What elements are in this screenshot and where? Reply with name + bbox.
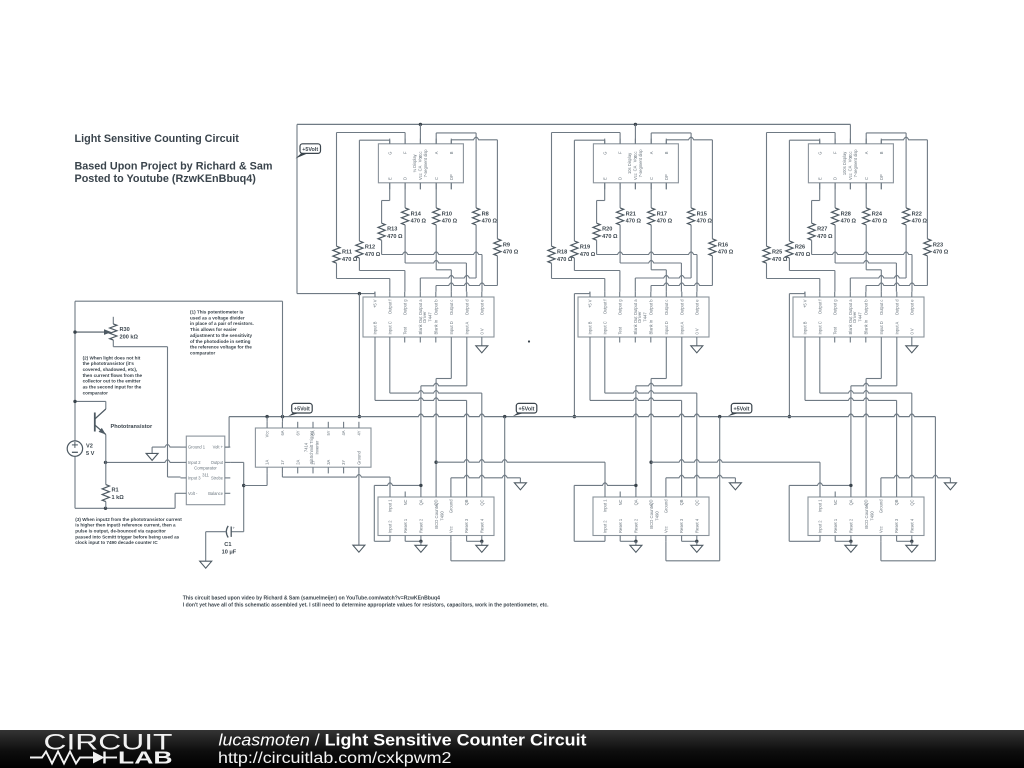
svg-text:0 V: 0 V bbox=[909, 328, 914, 334]
svg-text:470 Ω: 470 Ω bbox=[442, 219, 458, 225]
svg-text:Volt +: Volt + bbox=[213, 445, 224, 450]
svg-text:used as a voltage divider: used as a voltage divider bbox=[190, 315, 245, 320]
svg-text:311: 311 bbox=[202, 473, 209, 478]
svg-text:+: + bbox=[233, 525, 236, 530]
svg-text:CA Vcc: CA Vcc bbox=[418, 155, 423, 171]
svg-text:Blank In: Blank In bbox=[863, 319, 868, 335]
svg-text:Reset 2: Reset 2 bbox=[849, 518, 854, 533]
svg-text:R24: R24 bbox=[872, 211, 883, 217]
svg-text:Input D: Input D bbox=[449, 321, 454, 334]
svg-text:Strobe: Strobe bbox=[211, 476, 224, 481]
svg-text:+5Volt: +5Volt bbox=[519, 407, 535, 413]
svg-text:7-segment disp: 7-segment disp bbox=[423, 149, 428, 178]
svg-text:10 μF: 10 μF bbox=[222, 550, 237, 556]
svg-text:3Y: 3Y bbox=[341, 460, 346, 465]
svg-text:E: E bbox=[602, 177, 607, 180]
svg-text:Ground: Ground bbox=[879, 499, 884, 513]
svg-text:Reset 1: Reset 1 bbox=[403, 518, 408, 533]
svg-text:470 Ω: 470 Ω bbox=[912, 219, 928, 225]
svg-text:BCD Counter: BCD Counter bbox=[649, 503, 654, 529]
svg-text:Ground: Ground bbox=[449, 499, 454, 513]
svg-text:100s Display: 100s Display bbox=[842, 151, 847, 175]
svg-text:470 Ω: 470 Ω bbox=[841, 219, 857, 225]
svg-text:R16: R16 bbox=[718, 242, 728, 248]
svg-text:R23: R23 bbox=[933, 242, 943, 248]
svg-text:Reset 4: Reset 4 bbox=[909, 518, 914, 533]
svg-text:5 V: 5 V bbox=[86, 451, 95, 457]
svg-text:Input D: Input D bbox=[879, 321, 884, 334]
svg-text:Output b: Output b bbox=[863, 299, 868, 315]
svg-text:470 Ω: 470 Ω bbox=[557, 257, 573, 263]
svg-text:NC: NC bbox=[403, 499, 408, 505]
svg-text:Posted to Youtube (RzwKEnBbuq4: Posted to Youtube (RzwKEnBbuq4) bbox=[75, 173, 257, 185]
svg-text:QB: QB bbox=[464, 499, 469, 505]
svg-text:10s Display: 10s Display bbox=[627, 152, 632, 174]
svg-text:I don't yet have all of this s: I don't yet have all of this schematic a… bbox=[183, 602, 549, 608]
svg-text:470 Ω: 470 Ω bbox=[365, 252, 381, 258]
svg-text:adjustment to the sensitivity: adjustment to the sensitivity bbox=[190, 333, 252, 338]
svg-text:Output b: Output b bbox=[433, 299, 438, 315]
svg-text:Input 2: Input 2 bbox=[188, 460, 201, 465]
svg-text:Comparator: Comparator bbox=[194, 466, 217, 471]
svg-text:C: C bbox=[864, 177, 869, 180]
svg-text:Test: Test bbox=[832, 326, 837, 334]
svg-text:470 Ω: 470 Ω bbox=[933, 250, 949, 256]
svg-text:470 Ω: 470 Ω bbox=[411, 219, 427, 225]
svg-text:470 Ω: 470 Ω bbox=[626, 219, 642, 225]
svg-text:Driver: Driver bbox=[852, 311, 857, 323]
svg-text:Driver: Driver bbox=[422, 311, 427, 323]
svg-text:lucasmoten / Light Sensitive C: lucasmoten / Light Sensitive Counter Cir… bbox=[219, 732, 588, 750]
svg-text:is higher then input3 referenc: is higher then input3 reference current,… bbox=[75, 523, 176, 528]
svg-text:+5Volt: +5Volt bbox=[294, 407, 310, 413]
svg-text:Blank In: Blank In bbox=[648, 319, 653, 335]
svg-text:QC: QC bbox=[694, 499, 699, 505]
svg-text:0 V: 0 V bbox=[694, 328, 699, 334]
svg-text:C: C bbox=[434, 177, 439, 180]
svg-text:comparator: comparator bbox=[190, 350, 215, 355]
svg-text:Reset 4: Reset 4 bbox=[694, 518, 699, 533]
svg-text:Light Sensitive Counting Circu: Light Sensitive Counting Circuit bbox=[75, 133, 240, 145]
svg-text:Balance: Balance bbox=[208, 491, 224, 496]
svg-text:CA Vcc: CA Vcc bbox=[848, 155, 853, 171]
svg-text:Input B: Input B bbox=[588, 321, 593, 334]
svg-text:passed into Scmitt trigger bef: passed into Scmitt trigger before being … bbox=[75, 534, 179, 539]
svg-text:NC: NC bbox=[833, 499, 838, 505]
svg-text:Output b: Output b bbox=[648, 299, 653, 315]
svg-text:Output: Output bbox=[211, 460, 224, 465]
svg-text:470 Ω: 470 Ω bbox=[817, 234, 833, 240]
svg-text:pulse is output, de-bounced vi: pulse is output, de-bounced via capacito… bbox=[75, 529, 166, 534]
svg-text:the reference voltage for the: the reference voltage for the bbox=[190, 345, 252, 350]
svg-text:Input C: Input C bbox=[817, 321, 822, 334]
svg-text:Output c: Output c bbox=[664, 300, 669, 315]
svg-text:in place of a pair of resistor: in place of a pair of resistors. bbox=[190, 321, 254, 326]
svg-text:R12: R12 bbox=[365, 245, 375, 251]
svg-text:Test: Test bbox=[617, 326, 622, 334]
svg-text:G: G bbox=[602, 152, 607, 155]
svg-text:This allows for easier: This allows for easier bbox=[190, 327, 237, 332]
svg-text:Input A: Input A bbox=[679, 321, 684, 334]
svg-text:2A: 2A bbox=[295, 460, 300, 465]
svg-text:Blank In: Blank In bbox=[433, 319, 438, 335]
svg-text:Reset 3: Reset 3 bbox=[894, 518, 899, 533]
svg-text:C: C bbox=[649, 177, 654, 180]
svg-text:Output e: Output e bbox=[694, 299, 699, 315]
svg-text:470 Ω: 470 Ω bbox=[718, 250, 734, 256]
svg-text:BCD Counter: BCD Counter bbox=[434, 503, 439, 529]
svg-text:QC: QC bbox=[479, 499, 484, 505]
svg-text:Input 2: Input 2 bbox=[818, 520, 823, 533]
svg-text:(1) This potentiometer is: (1) This potentiometer is bbox=[190, 310, 244, 315]
svg-text:Vcc: Vcc bbox=[265, 431, 270, 438]
svg-text:A: A bbox=[434, 151, 439, 154]
svg-text:Output f: Output f bbox=[387, 299, 392, 314]
svg-text:R27: R27 bbox=[817, 227, 827, 233]
svg-text:Output f: Output f bbox=[817, 299, 822, 314]
svg-text:G: G bbox=[817, 152, 822, 155]
svg-text:Ground: Ground bbox=[664, 499, 669, 513]
svg-text:D: D bbox=[618, 177, 623, 180]
svg-text:the phototransistor (it's: the phototransistor (it's bbox=[83, 361, 135, 366]
svg-text:200 kΩ: 200 kΩ bbox=[120, 335, 139, 341]
svg-text:C1: C1 bbox=[224, 542, 231, 548]
svg-text:Input 1: Input 1 bbox=[603, 499, 608, 512]
svg-text:Reset 1: Reset 1 bbox=[618, 518, 623, 533]
svg-text:QB: QB bbox=[894, 499, 899, 505]
svg-text:4A: 4A bbox=[341, 430, 346, 435]
svg-text:CA Vcc: CA Vcc bbox=[633, 155, 638, 171]
svg-text:Vcc: Vcc bbox=[449, 526, 454, 533]
svg-text:6Y: 6Y bbox=[295, 430, 300, 435]
svg-text:Input 3: Input 3 bbox=[188, 476, 201, 481]
svg-text:G: G bbox=[387, 152, 392, 155]
svg-text:R22: R22 bbox=[912, 211, 922, 217]
svg-text:B: B bbox=[664, 151, 669, 154]
svg-text:DP: DP bbox=[664, 174, 669, 180]
svg-text:Vcc: Vcc bbox=[664, 526, 669, 533]
svg-text:then current flows from the: then current flows from the bbox=[83, 373, 143, 378]
svg-text:Volt -: Volt - bbox=[188, 491, 198, 496]
svg-text:Input C: Input C bbox=[602, 321, 607, 334]
svg-text:Input C: Input C bbox=[387, 321, 392, 334]
svg-text:QA: QA bbox=[419, 499, 424, 505]
svg-text:1A: 1A bbox=[265, 460, 270, 465]
svg-text:Vcc: Vcc bbox=[879, 526, 884, 533]
svg-text:Driver: Driver bbox=[637, 311, 642, 323]
svg-text:Output g: Output g bbox=[402, 299, 407, 315]
svg-text:Based Upon Project by Richard: Based Upon Project by Richard & Sam bbox=[75, 161, 273, 173]
svg-text:R26: R26 bbox=[795, 245, 805, 251]
svg-text:B: B bbox=[879, 151, 884, 154]
svg-text:R11: R11 bbox=[342, 250, 352, 256]
svg-text:Input A: Input A bbox=[894, 321, 899, 334]
svg-text:(3) When input2 from the photo: (3) When input2 from the phototransistor… bbox=[75, 517, 182, 522]
svg-text:of the photodiode in setting: of the photodiode in setting bbox=[190, 339, 251, 344]
svg-text:+5Volt: +5Volt bbox=[302, 147, 318, 153]
svg-text:7447: 7447 bbox=[858, 312, 863, 322]
svg-text:Input D: Input D bbox=[664, 321, 669, 334]
svg-text:1 kΩ: 1 kΩ bbox=[112, 495, 125, 501]
svg-text:4Y: 4Y bbox=[357, 430, 362, 435]
svg-text:http://circuitlab.com/cxkpwm2: http://circuitlab.com/cxkpwm2 bbox=[218, 750, 452, 767]
svg-text:470 Ω: 470 Ω bbox=[482, 219, 498, 225]
svg-text:QA: QA bbox=[849, 499, 854, 505]
svg-text:clock input to 7490 decade cou: clock input to 7490 decade counter IC bbox=[75, 540, 158, 545]
svg-text:Output d: Output d bbox=[894, 299, 899, 315]
svg-text:R21: R21 bbox=[626, 211, 636, 217]
svg-text:Output g: Output g bbox=[832, 299, 837, 315]
svg-text:collector out to the emitter: collector out to the emitter bbox=[83, 379, 141, 384]
svg-text:7-segment disp: 7-segment disp bbox=[853, 149, 858, 178]
svg-text:7-segment disp: 7-segment disp bbox=[638, 149, 643, 178]
svg-text:7414: 7414 bbox=[304, 442, 309, 452]
svg-text:R30: R30 bbox=[120, 327, 130, 333]
svg-text:Output d: Output d bbox=[679, 299, 684, 315]
svg-text:QB: QB bbox=[679, 499, 684, 505]
svg-text:R9: R9 bbox=[503, 242, 510, 248]
svg-text:V2: V2 bbox=[86, 444, 93, 450]
svg-text:Reset 2: Reset 2 bbox=[634, 518, 639, 533]
svg-text:covered, shadowed, etc),: covered, shadowed, etc), bbox=[83, 367, 138, 372]
svg-text:R14: R14 bbox=[411, 211, 422, 217]
svg-text:E: E bbox=[387, 177, 392, 180]
svg-text:Input B: Input B bbox=[373, 321, 378, 334]
svg-text:Output c: Output c bbox=[449, 300, 454, 315]
svg-text:470 Ω: 470 Ω bbox=[387, 234, 403, 240]
svg-text:+5 V: +5 V bbox=[373, 299, 378, 308]
svg-text:Test: Test bbox=[402, 326, 407, 334]
svg-text:R15: R15 bbox=[697, 211, 707, 217]
svg-text:Input 1: Input 1 bbox=[818, 499, 823, 512]
svg-text:BCD Counter: BCD Counter bbox=[864, 503, 869, 529]
svg-text:Output c: Output c bbox=[879, 300, 884, 315]
svg-text:R18: R18 bbox=[557, 250, 567, 256]
svg-text:470 Ω: 470 Ω bbox=[580, 252, 596, 258]
svg-text:QA: QA bbox=[634, 499, 639, 505]
svg-text:D: D bbox=[403, 177, 408, 180]
svg-text:R10: R10 bbox=[442, 211, 452, 217]
svg-text:Reset 3: Reset 3 bbox=[464, 518, 469, 533]
svg-text:LAB: LAB bbox=[118, 748, 173, 768]
svg-text:comparator: comparator bbox=[83, 390, 108, 395]
svg-text:0 V: 0 V bbox=[479, 328, 484, 334]
svg-text:A: A bbox=[649, 151, 654, 154]
svg-text:5Y: 5Y bbox=[326, 430, 331, 435]
svg-text:Output f: Output f bbox=[602, 299, 607, 314]
svg-text:Input 2: Input 2 bbox=[388, 520, 393, 533]
svg-text:¼ Display: ¼ Display bbox=[412, 153, 417, 172]
svg-text:3A: 3A bbox=[326, 460, 331, 465]
svg-text:470 Ω: 470 Ω bbox=[503, 250, 519, 256]
svg-text:7490: 7490 bbox=[655, 511, 660, 521]
svg-text:Reset 2: Reset 2 bbox=[419, 518, 424, 533]
svg-text:R13: R13 bbox=[387, 227, 397, 233]
svg-text:R8: R8 bbox=[482, 211, 489, 217]
svg-text:2/6Schmitt Trigger: 2/6Schmitt Trigger bbox=[309, 430, 314, 464]
svg-text:Phototransistor: Phototransistor bbox=[111, 424, 153, 430]
svg-text:R25: R25 bbox=[772, 250, 782, 256]
svg-text:Ground 1: Ground 1 bbox=[188, 445, 206, 450]
svg-text:R17: R17 bbox=[657, 211, 667, 217]
svg-text:This circuit based upon video: This circuit based upon video by Richard… bbox=[183, 596, 440, 602]
svg-text:+5 V: +5 V bbox=[803, 299, 808, 308]
svg-text:R1: R1 bbox=[112, 488, 119, 494]
svg-text:7447: 7447 bbox=[428, 312, 433, 322]
svg-text:DP: DP bbox=[449, 174, 454, 180]
svg-text:as the second input for the: as the second input for the bbox=[83, 385, 142, 390]
svg-text:470 Ω: 470 Ω bbox=[772, 257, 788, 263]
svg-text:+5Volt: +5Volt bbox=[734, 407, 750, 413]
svg-text:QC: QC bbox=[909, 499, 914, 505]
svg-text:470 Ω: 470 Ω bbox=[872, 219, 888, 225]
svg-text:B: B bbox=[449, 151, 454, 154]
svg-text:Reset 1: Reset 1 bbox=[833, 518, 838, 533]
svg-text:Input A: Input A bbox=[464, 321, 469, 334]
svg-text:7490: 7490 bbox=[440, 511, 445, 521]
svg-text:D: D bbox=[833, 177, 838, 180]
svg-text:470 Ω: 470 Ω bbox=[602, 234, 618, 240]
svg-text:Output e: Output e bbox=[909, 299, 914, 315]
svg-text:NC: NC bbox=[618, 499, 623, 505]
svg-text:Output e: Output e bbox=[479, 299, 484, 315]
svg-text:470 Ω: 470 Ω bbox=[697, 219, 713, 225]
svg-text:Input 2: Input 2 bbox=[603, 520, 608, 533]
svg-text:7490: 7490 bbox=[870, 511, 875, 521]
svg-text:Reset 4: Reset 4 bbox=[479, 518, 484, 533]
svg-text:Output g: Output g bbox=[617, 299, 622, 315]
svg-text:Ground: Ground bbox=[357, 450, 362, 464]
svg-text:Reset 3: Reset 3 bbox=[679, 518, 684, 533]
svg-text:Input 1: Input 1 bbox=[388, 499, 393, 512]
svg-text:Inverter: Inverter bbox=[315, 440, 320, 455]
svg-text:470 Ω: 470 Ω bbox=[657, 219, 673, 225]
svg-text:470 Ω: 470 Ω bbox=[342, 257, 358, 263]
svg-text:7447: 7447 bbox=[643, 312, 648, 322]
svg-text:DP: DP bbox=[879, 174, 884, 180]
svg-text:R28: R28 bbox=[841, 211, 851, 217]
svg-text:Input B: Input B bbox=[803, 321, 808, 334]
svg-text:R20: R20 bbox=[602, 227, 612, 233]
svg-text:6A: 6A bbox=[280, 430, 285, 435]
svg-text:(2) When light does not hit: (2) When light does not hit bbox=[83, 355, 141, 360]
svg-text:R19: R19 bbox=[580, 245, 590, 251]
svg-text:A: A bbox=[864, 151, 869, 154]
svg-text:1Y: 1Y bbox=[280, 460, 285, 465]
svg-text:+5 V: +5 V bbox=[588, 299, 593, 308]
svg-text:470 Ω: 470 Ω bbox=[795, 252, 811, 258]
svg-text:E: E bbox=[817, 177, 822, 180]
svg-text:Output d: Output d bbox=[464, 299, 469, 315]
